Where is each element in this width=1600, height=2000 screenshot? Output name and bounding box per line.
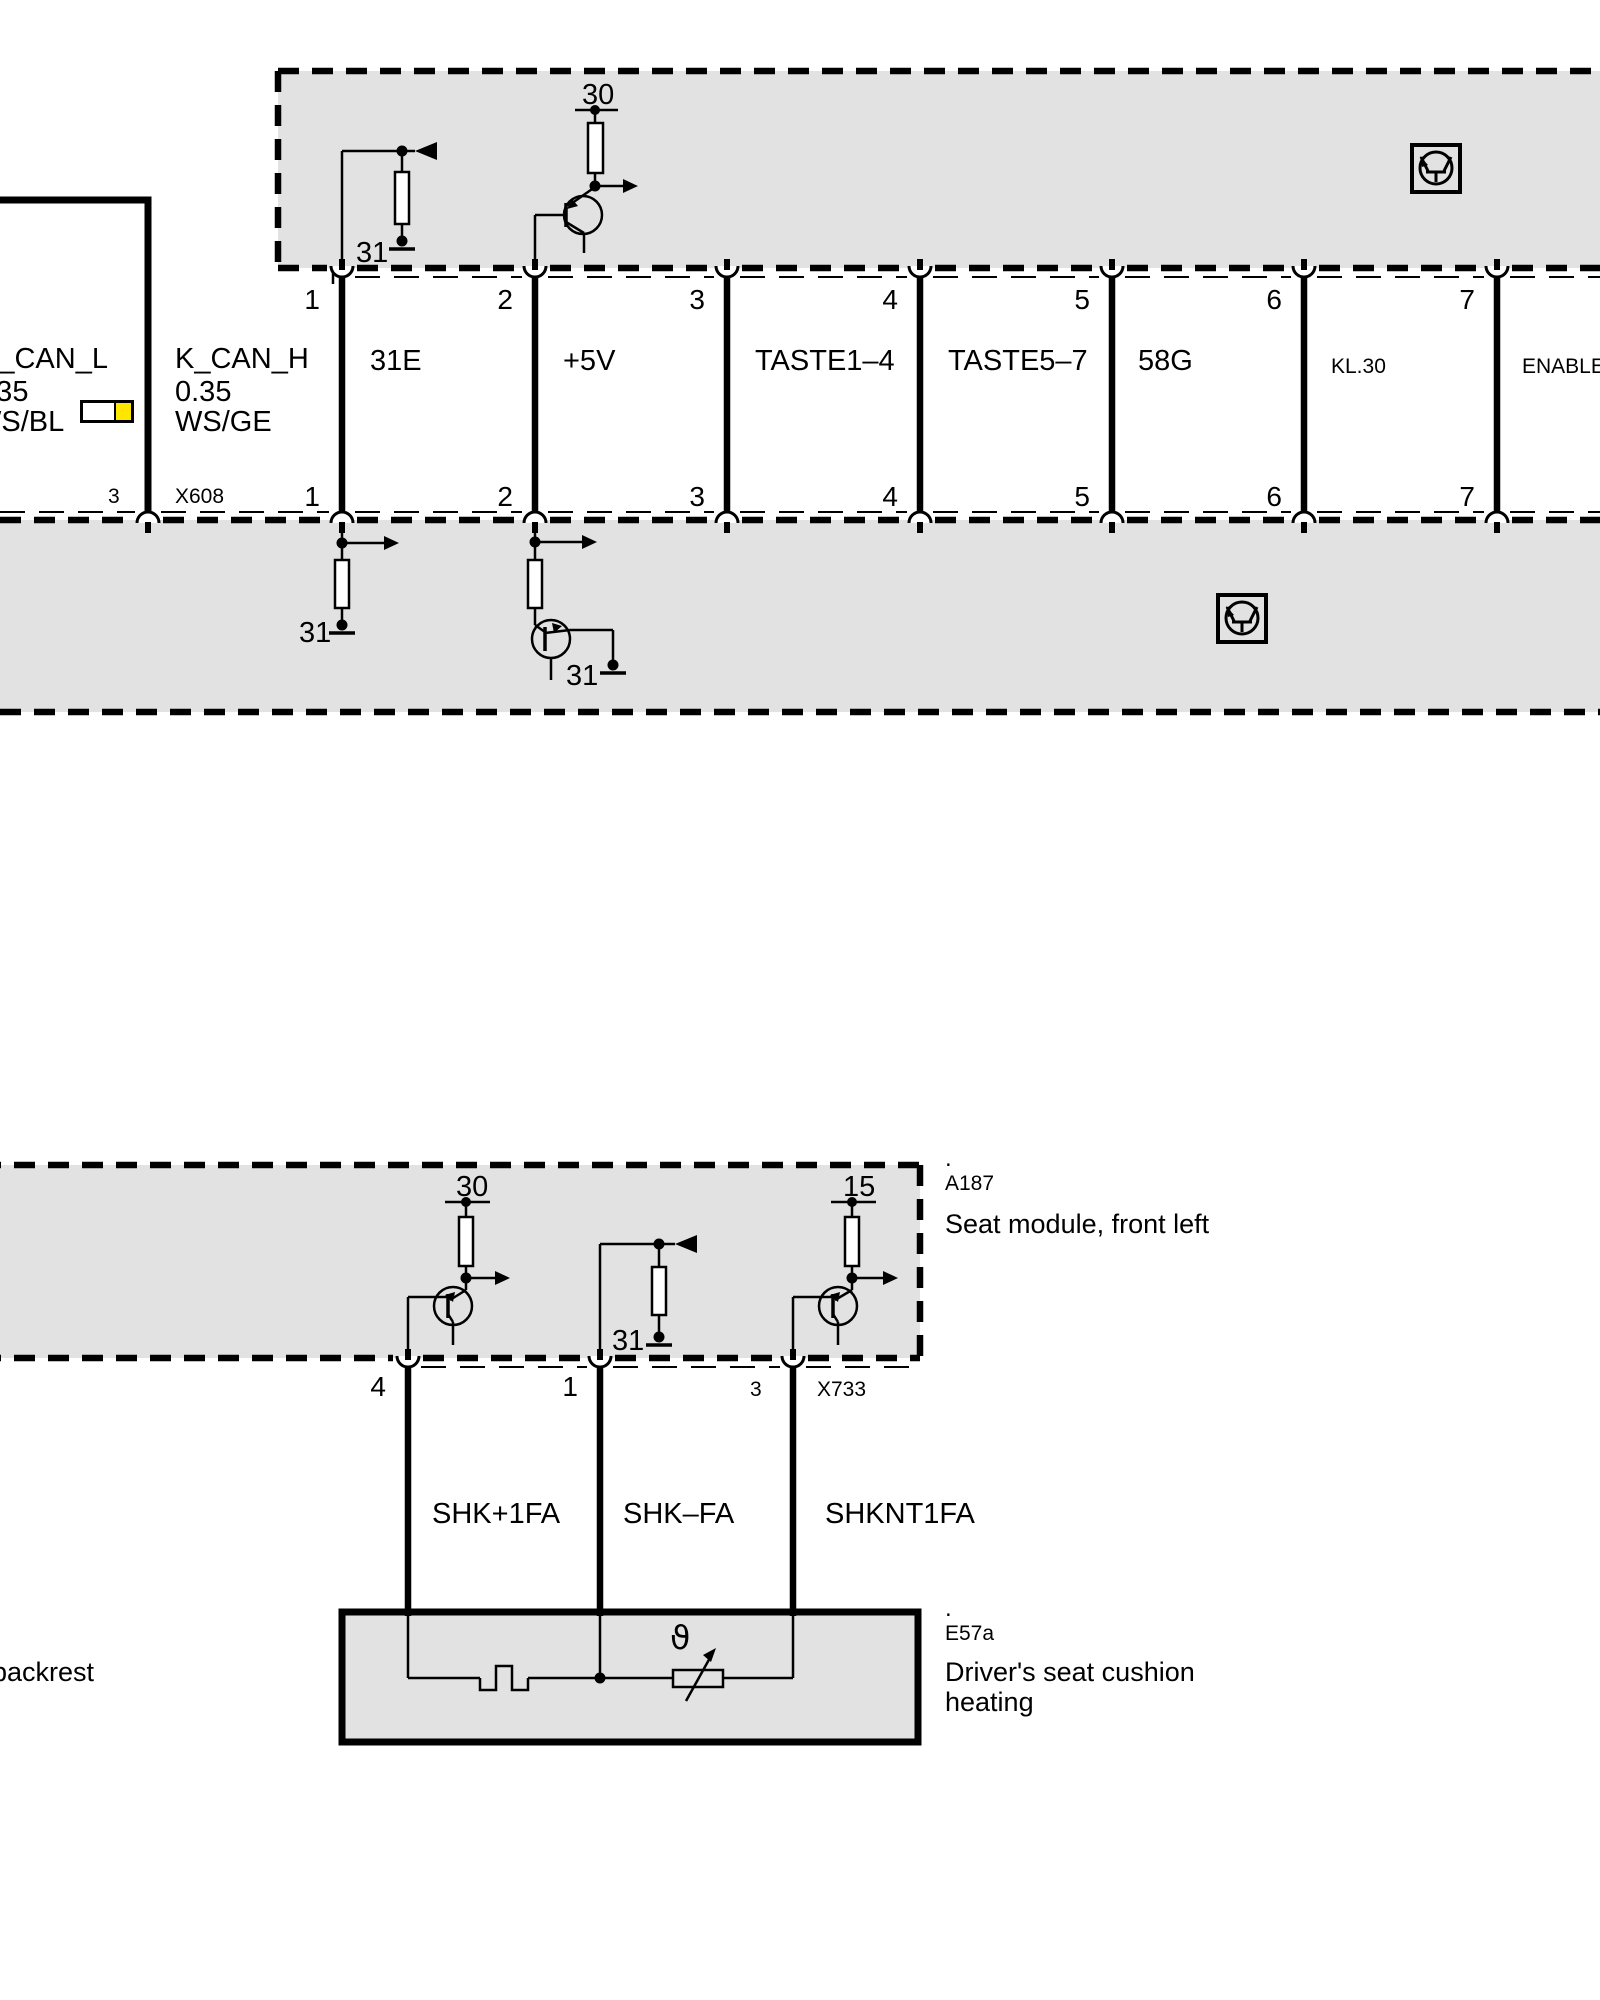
pin-number: 1: [276, 285, 320, 316]
terminal-15-label: 15: [843, 1172, 875, 1204]
wire-label-enable: ENABLE: [1522, 355, 1600, 378]
component-code-e57a: E57a: [945, 1622, 994, 1645]
wire-label-taste1: TASTE1–4: [755, 346, 895, 378]
pin-number: 1: [534, 1372, 578, 1403]
component-dot: .: [945, 1596, 952, 1622]
terminal-31-label: 31: [299, 618, 331, 650]
wire-color-k-can-l: WS/BL: [0, 407, 64, 439]
pin-number: 4: [854, 285, 898, 316]
terminal-30-label: 30: [582, 80, 614, 112]
temperature-theta-symbol: ϑ: [670, 1620, 690, 1656]
wire-label-taste5: TASTE5–7: [948, 346, 1088, 378]
terminal-31-label: 31: [612, 1326, 644, 1358]
resistor-symbol: [335, 560, 349, 608]
wire-label-31e: 31E: [370, 346, 422, 378]
connector-strip-top: [333, 271, 1600, 284]
wire-label-5v: +5V: [563, 346, 615, 378]
terminal-31-label: 31: [566, 661, 598, 693]
wiring-graphics: [0, 0, 1600, 2000]
pin-number: 2: [469, 482, 513, 513]
top-module-box: [278, 71, 1600, 268]
pin-number: 7: [1431, 285, 1475, 316]
pin-number: 4: [854, 482, 898, 513]
wire-color-swatch-yellow: [114, 403, 131, 420]
wire-color-k-can-h: WS/GE: [175, 407, 272, 439]
pin-number: 3: [661, 482, 705, 513]
wire-label-shknt: SHKNT1FA: [825, 1499, 975, 1531]
component-name-heater: Driver's seat cushion heating: [945, 1658, 1195, 1717]
pin-number: 3: [661, 285, 705, 316]
wire-gauge-k-can-l: 0.35: [0, 377, 28, 409]
component-code-a187: A187: [945, 1172, 994, 1195]
connector-name-x733: X733: [817, 1378, 866, 1401]
pin-number: 1: [276, 482, 320, 513]
wire-label-58g: 58G: [1138, 346, 1193, 378]
resistor-symbol: [528, 560, 542, 608]
wire-name-k-can-l: K_CAN_L: [0, 344, 108, 376]
lower-band-box: [0, 520, 1600, 712]
pin-number: 6: [1238, 482, 1282, 513]
resistor-symbol: [845, 1217, 859, 1266]
terminal-31-label: 31: [356, 238, 388, 270]
pin-number: 6: [1238, 285, 1282, 316]
wiring-diagram-page: K_CAN_L 0.35 WS/BL K_CAN_H 0.35 WS/GE 3 …: [0, 0, 1600, 2000]
wire-color-swatch: [80, 400, 134, 423]
pin-number: 3: [750, 1378, 762, 1401]
wire-label-kl30: KL.30: [1331, 355, 1386, 378]
resistor-symbol: [588, 123, 603, 173]
pin-number: 2: [469, 285, 513, 316]
connector-name-x608: X608: [175, 485, 224, 508]
resistor-symbol: [459, 1217, 473, 1266]
wire-name-k-can-h: K_CAN_H: [175, 344, 309, 376]
component-name-seat-module: Seat module, front left: [945, 1210, 1209, 1240]
wire-label-shk-minus: SHK–FA: [623, 1499, 734, 1531]
wire-gauge-k-can-h: 0.35: [175, 377, 231, 409]
pin-number: 5: [1046, 482, 1090, 513]
resistor-symbol: [395, 172, 409, 224]
pin-number: 4: [342, 1372, 386, 1403]
seat-heater-wires: [408, 1367, 793, 1616]
component-dot: .: [945, 1146, 952, 1172]
wire-label-shk-plus: SHK+1FA: [432, 1499, 560, 1531]
pin-number: 7: [1431, 482, 1475, 513]
module-wires: [342, 277, 1497, 512]
connector-pin-x608: 3: [108, 485, 120, 508]
terminal-30-label: 30: [456, 1172, 488, 1204]
backrest-text: backrest: [0, 1658, 94, 1688]
pin-number: 5: [1046, 285, 1090, 316]
resistor-symbol: [652, 1267, 666, 1315]
